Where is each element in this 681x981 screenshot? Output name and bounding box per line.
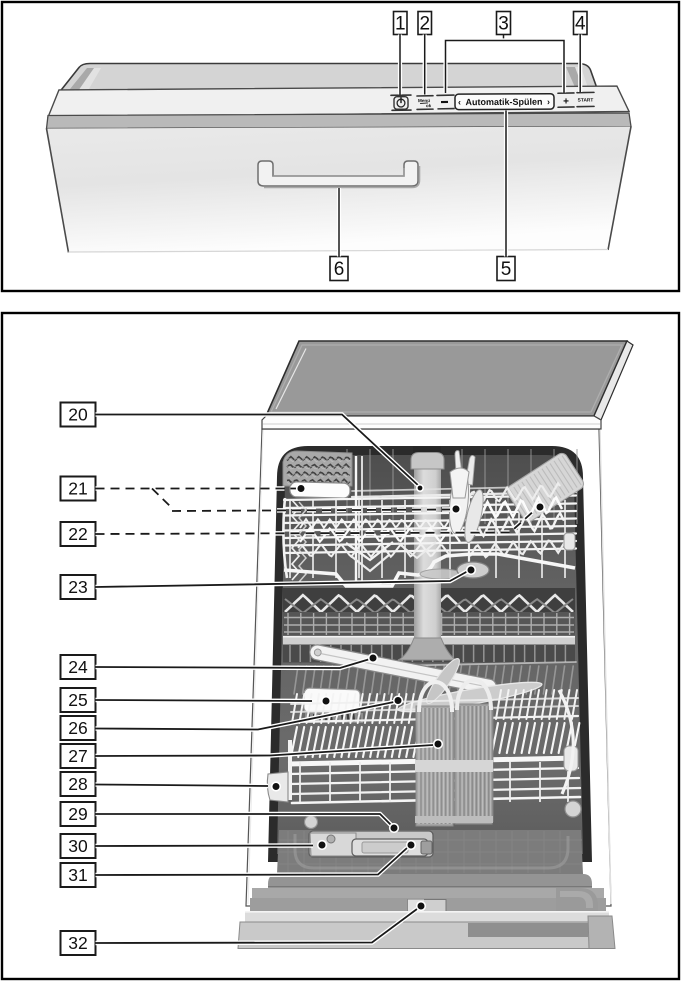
svg-text:31: 31 <box>68 865 87 885</box>
svg-text:20: 20 <box>68 405 88 425</box>
svg-text:28: 28 <box>68 774 87 794</box>
svg-text:23: 23 <box>68 577 87 597</box>
svg-text:ok: ok <box>426 103 432 108</box>
svg-text:‹ Automatik-Spülen ›: ‹ Automatik-Spülen › <box>458 97 550 107</box>
svg-text:3: 3 <box>498 14 509 35</box>
svg-text:1: 1 <box>395 14 406 35</box>
svg-text:26: 26 <box>68 718 87 738</box>
svg-text:4: 4 <box>575 14 586 35</box>
svg-text:30: 30 <box>68 836 88 856</box>
svg-text:22: 22 <box>68 524 87 544</box>
svg-text:+: + <box>563 96 569 107</box>
svg-text:6: 6 <box>334 259 345 280</box>
svg-text:25: 25 <box>68 690 87 710</box>
svg-text:29: 29 <box>68 804 87 824</box>
svg-text:2: 2 <box>419 14 430 35</box>
svg-text:24: 24 <box>68 657 88 677</box>
svg-text:5: 5 <box>501 259 512 280</box>
svg-text:27: 27 <box>68 746 87 766</box>
svg-text:32: 32 <box>68 933 87 953</box>
svg-text:21: 21 <box>68 479 87 499</box>
svg-text:START: START <box>578 97 594 103</box>
